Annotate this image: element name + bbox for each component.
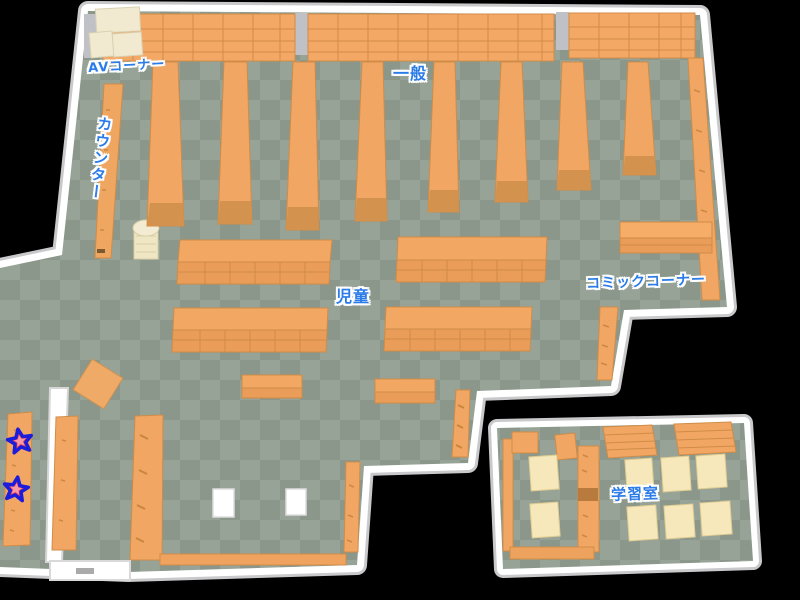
floor-map-canvas [0,0,800,600]
shelf [52,416,78,550]
shelf [130,415,163,560]
aisle-shelf [218,62,252,224]
aisle-shelf [428,62,459,212]
wall-shelves-top [103,13,695,61]
bench [242,375,302,398]
shelf [344,462,360,552]
white-table [286,489,306,515]
top-shelf-block-2 [308,14,554,61]
low-shelf [384,307,532,351]
aisle-shelf [147,62,184,226]
low-shelf [177,240,332,284]
aisle-shelf [495,62,528,202]
divider-shelf [578,446,599,552]
white-table [213,489,234,517]
low-shelf [396,237,547,282]
bench [375,379,435,403]
top-shelf-block-3 [569,13,695,58]
entrance-door [50,561,130,580]
study-room-annex [497,422,753,569]
study-top-shelf [674,422,736,455]
study-top-shelf [603,425,657,458]
bottom-wall-shelf [160,554,346,565]
low-shelf [172,308,328,352]
av-corner-tables [89,7,143,58]
